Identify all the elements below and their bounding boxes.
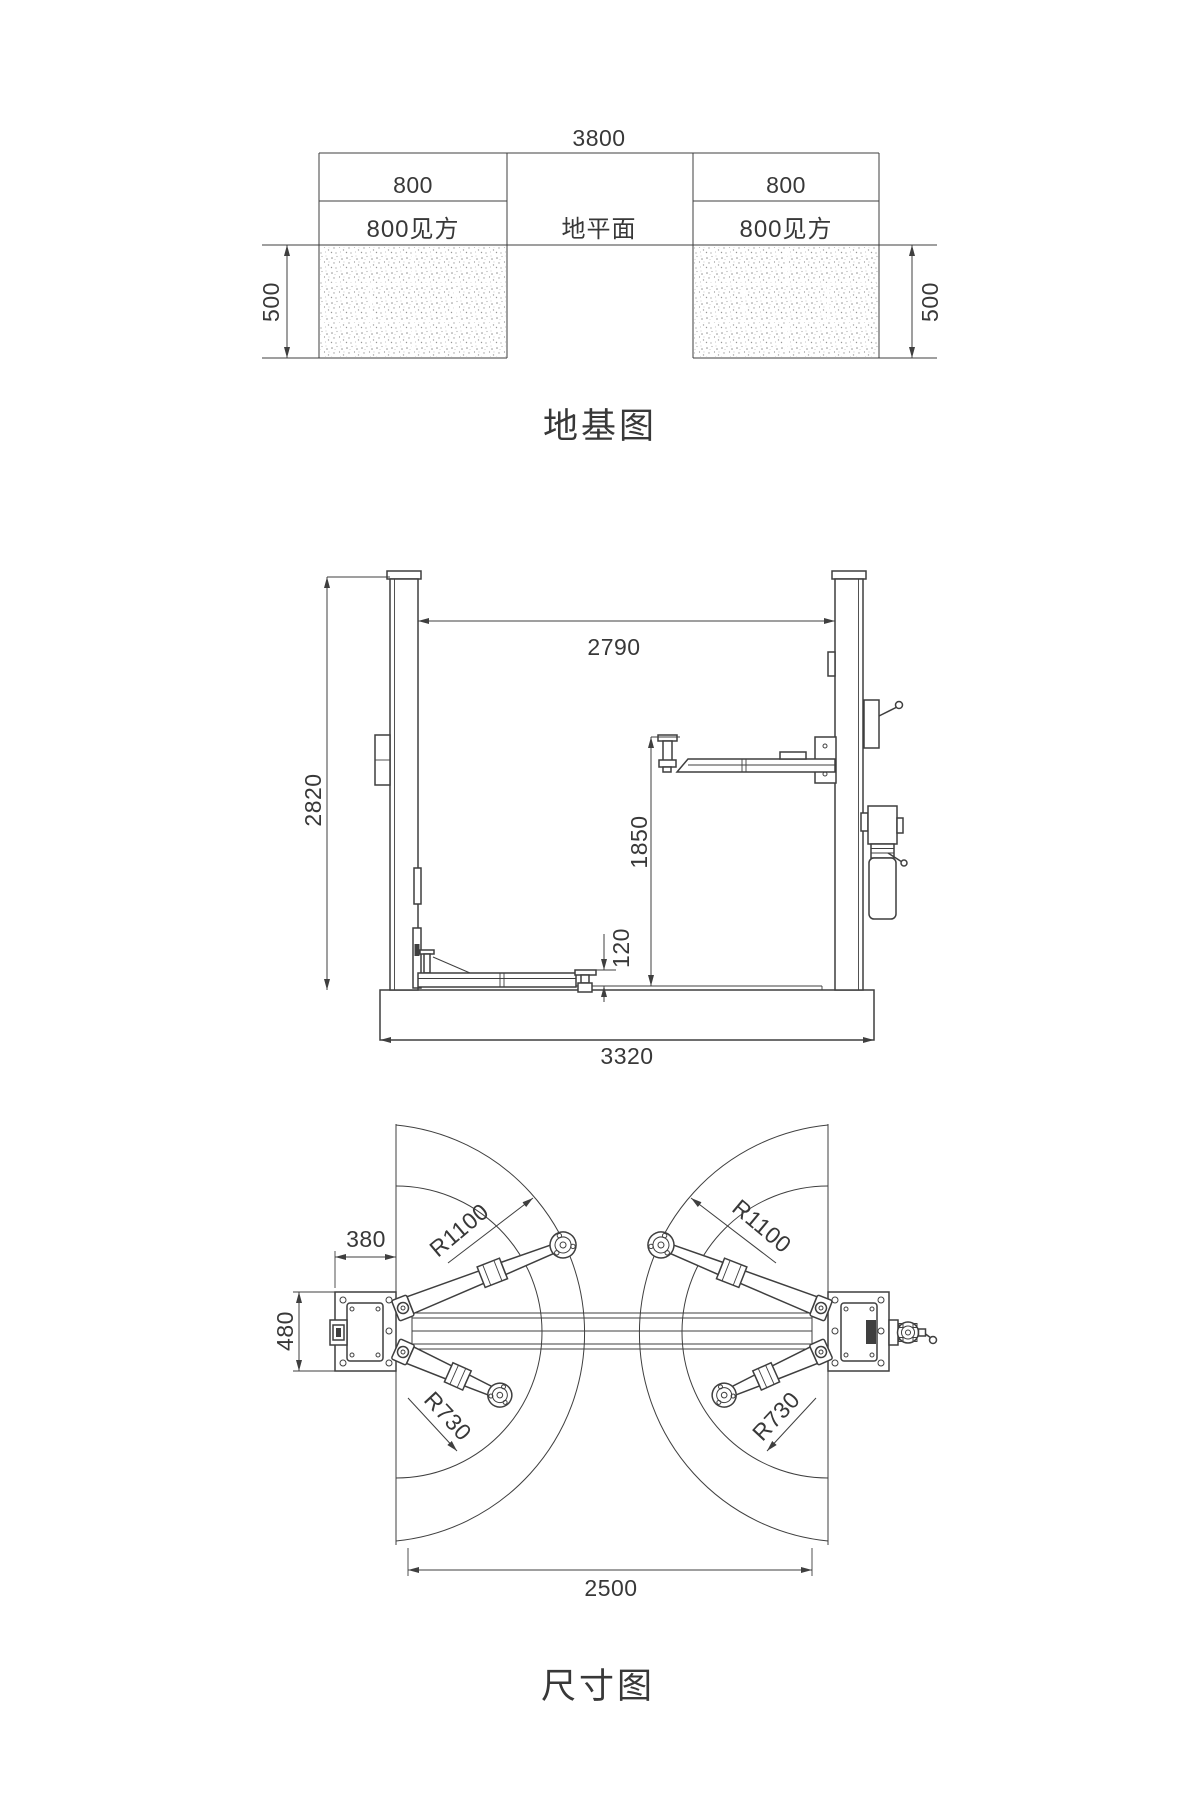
base-depth-label: 380 bbox=[346, 1226, 386, 1252]
oil-tank bbox=[869, 858, 896, 919]
base-width-label: 480 bbox=[272, 1311, 298, 1351]
left-column-cap bbox=[387, 571, 421, 579]
foundation-right-block-note-label: 800见方 bbox=[739, 216, 832, 243]
motor-top bbox=[898, 1322, 919, 1343]
lift-pad-lowered bbox=[575, 970, 596, 992]
swing-radius-front-right-label: R1100 bbox=[727, 1194, 796, 1258]
swing-arc-r1100-left bbox=[396, 1125, 585, 1541]
right-column-bracket bbox=[828, 652, 835, 676]
control-lever bbox=[879, 707, 897, 716]
crossbeam bbox=[412, 1313, 812, 1349]
left-column bbox=[375, 571, 421, 990]
motor-body bbox=[868, 806, 897, 844]
left-column-latch bbox=[414, 868, 421, 904]
column-base-right bbox=[828, 1292, 889, 1371]
base-frame bbox=[380, 990, 874, 1040]
carriage-arm-raised bbox=[658, 735, 836, 783]
carriage-top-view bbox=[347, 1303, 383, 1361]
carriage-arm-lowered bbox=[413, 928, 596, 992]
post-spacing-label: 2500 bbox=[584, 1575, 637, 1601]
foundation-depth-right-label: 500 bbox=[917, 282, 943, 322]
swing-radius-rear-right-label: R730 bbox=[747, 1386, 805, 1445]
dim-depth-right: 500 bbox=[912, 245, 943, 358]
hydraulic-power-unit bbox=[861, 806, 907, 919]
foundation-depth-left-label: 500 bbox=[258, 282, 284, 322]
wheel-pad bbox=[546, 1228, 580, 1262]
foundation-plan-view: 500 500 3800 800 800 800见方 地平面 800见方 地基图 bbox=[258, 125, 943, 446]
clear-distance-label: 2790 bbox=[587, 634, 640, 660]
foundation-right-block-width-label: 800 bbox=[766, 172, 806, 198]
top-plan-view: 380 480 R1100 R1100 R730 R730 2500 尺 bbox=[272, 1124, 937, 1706]
front-elevation-view: 2790 bbox=[300, 571, 907, 1069]
dim-post-spacing: 2500 bbox=[408, 1548, 812, 1601]
two-post-lift-technical-drawing: 500 500 3800 800 800 800见方 地平面 800见方 地基图… bbox=[0, 0, 1200, 1800]
lift-pad-raised bbox=[658, 735, 677, 772]
lift-arm-lowered bbox=[418, 973, 576, 987]
right-column-cap bbox=[832, 571, 866, 579]
foundation-left-block-note-label: 800见方 bbox=[366, 216, 459, 243]
dim-base-depth: 380 bbox=[335, 1226, 396, 1288]
ground-plane-label: 地平面 bbox=[562, 216, 637, 243]
dim-clear-distance: 2790 bbox=[418, 621, 835, 660]
pump-handle-knob bbox=[930, 1337, 937, 1344]
lift-height-label: 1850 bbox=[626, 815, 652, 868]
foundation-overall-width-label: 3800 bbox=[572, 125, 625, 151]
swing-arc-r1100-right bbox=[639, 1125, 828, 1541]
foundation-plan-title: 地基图 bbox=[543, 407, 657, 446]
cylinder-cover-left bbox=[330, 1320, 347, 1345]
foundation-block-right bbox=[694, 247, 878, 357]
lift-arm-raised bbox=[677, 759, 835, 772]
radius-callouts: R1100 R1100 R730 R730 bbox=[408, 1194, 816, 1451]
dim-overall-width: 3320 bbox=[380, 1040, 874, 1069]
dim-depth-left: 500 bbox=[258, 245, 287, 358]
control-lever-knob bbox=[896, 702, 903, 709]
swing-arcs bbox=[396, 1125, 828, 1541]
swing-radius-rear-left-label: R730 bbox=[419, 1386, 477, 1445]
dim-base-width: 480 bbox=[272, 1292, 335, 1371]
front-arm-right bbox=[644, 1228, 833, 1323]
foundation-left-block-width-label: 800 bbox=[393, 172, 433, 198]
wheel-pad bbox=[484, 1379, 516, 1411]
dim-lift-height: 1850 bbox=[626, 737, 680, 986]
min-arm-height-label: 120 bbox=[608, 928, 634, 968]
swing-radius-front-left-label: R1100 bbox=[424, 1198, 493, 1262]
right-column bbox=[828, 571, 907, 990]
control-box bbox=[864, 700, 903, 748]
front-arm-left bbox=[391, 1228, 580, 1323]
overall-width-label: 3320 bbox=[600, 1043, 653, 1069]
plan-view-title: 尺寸图 bbox=[541, 1667, 655, 1706]
drawing-sheet: 500 500 3800 800 800 800见方 地平面 800见方 地基图… bbox=[0, 0, 1200, 1800]
column-height-label: 2820 bbox=[300, 773, 326, 826]
foundation-block-left bbox=[320, 247, 506, 357]
